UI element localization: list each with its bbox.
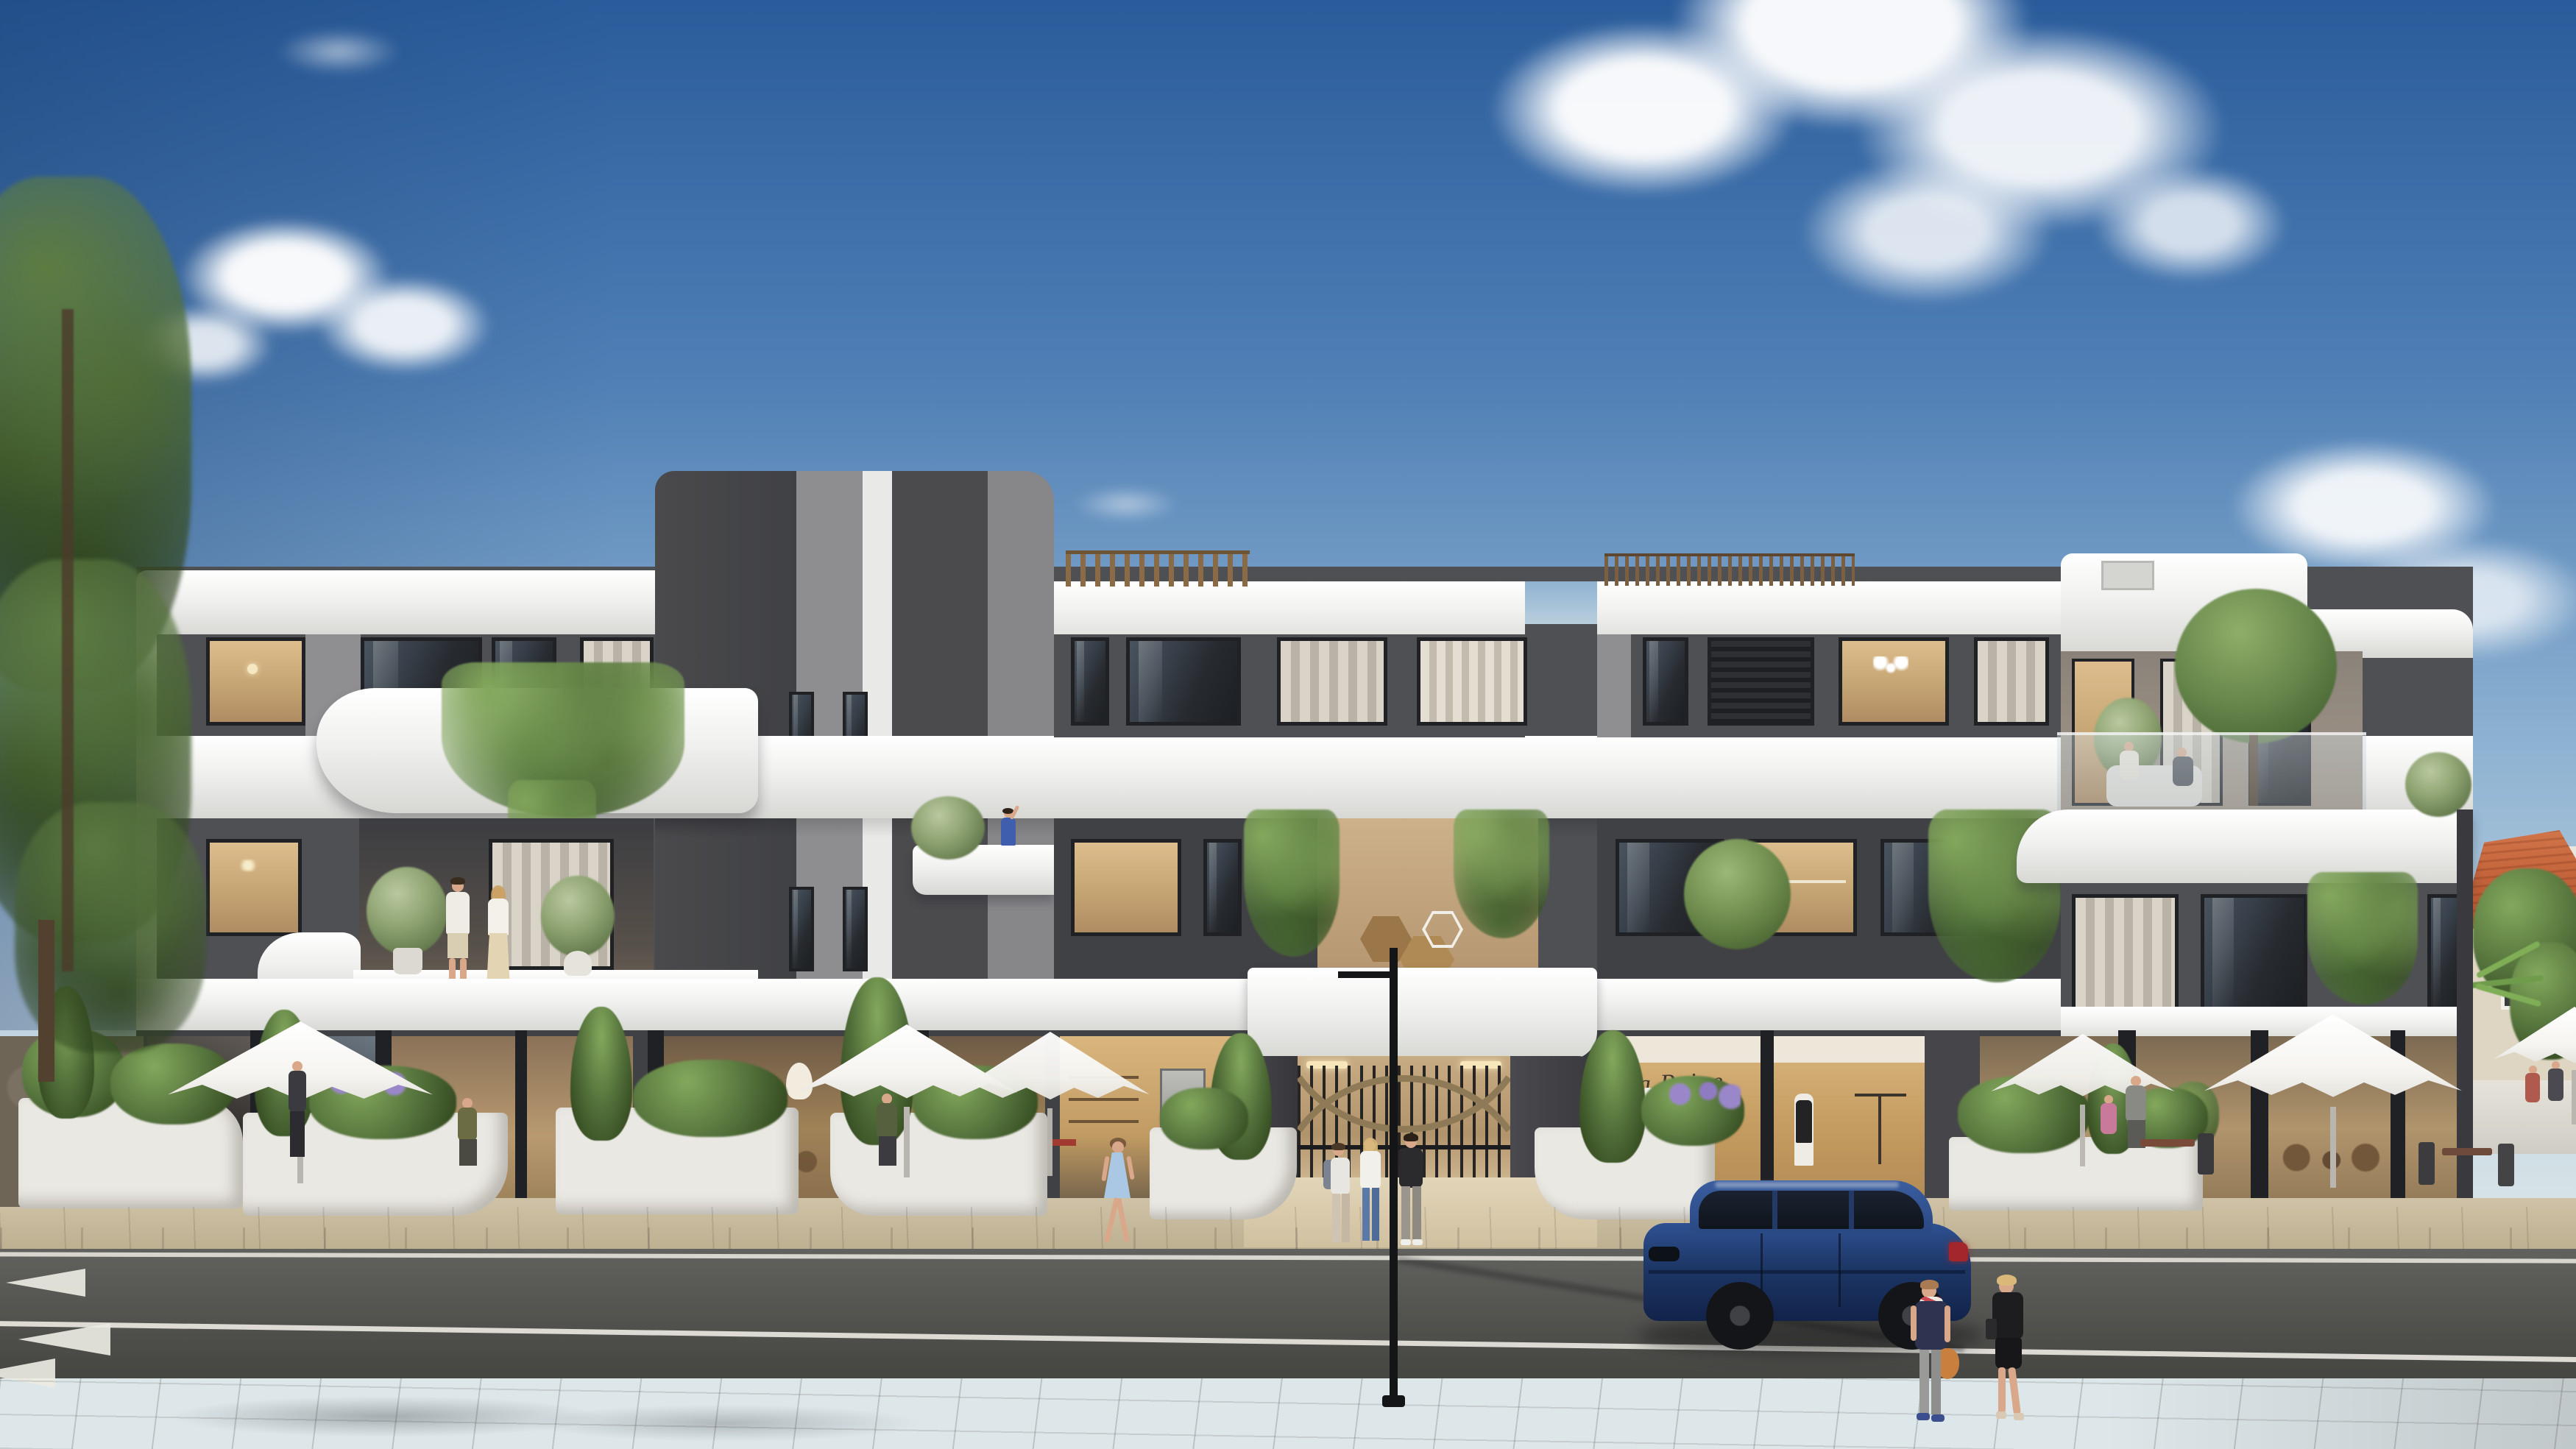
suv-door-seam	[1839, 1233, 1841, 1307]
body-part	[1998, 1367, 2006, 1413]
body-part	[1931, 1350, 1941, 1414]
cafe-patron-standing	[284, 1061, 311, 1160]
parasol-pole	[1047, 1108, 1052, 1176]
cafe-table	[2442, 1148, 2492, 1155]
parapet-tree-small	[2405, 752, 2471, 817]
curb	[0, 1227, 2576, 1250]
panel-gray-accent	[1597, 634, 1631, 737]
roof-notch	[1525, 581, 1597, 624]
body-part	[2131, 1076, 2141, 1086]
body-part	[2126, 1085, 2146, 1122]
body-part	[2008, 1367, 2021, 1415]
potted-olive	[367, 867, 447, 955]
parasol-pole	[2080, 1105, 2085, 1166]
window-warm	[206, 637, 305, 726]
window-curtain	[2072, 894, 2179, 1010]
body-part	[1992, 1292, 2023, 1339]
body-part	[290, 1111, 305, 1157]
cafe-chair	[2498, 1144, 2514, 1186]
body-part	[446, 892, 470, 935]
body-part	[1404, 1133, 1418, 1141]
body-part	[1116, 1198, 1129, 1242]
cloud-wisp-center	[1045, 471, 1207, 537]
body-part	[450, 877, 465, 885]
body-part	[2014, 1413, 2024, 1420]
waving-woman	[995, 807, 1022, 851]
tower-window-slim	[789, 887, 814, 971]
parasol-canopy	[2204, 1014, 2462, 1118]
tree-shadow-on-sidewalk	[132, 1384, 979, 1449]
body-part	[2525, 1073, 2540, 1102]
parasol-pole	[2330, 1107, 2336, 1188]
body-part	[1001, 818, 1016, 846]
street-lamp-base	[1382, 1395, 1405, 1407]
street-lamp-arm	[1338, 971, 1394, 978]
balcony-plant	[911, 796, 985, 860]
body-part	[1372, 1188, 1379, 1241]
body-part	[1911, 1305, 1917, 1341]
pine-trunk	[62, 309, 74, 971]
suv-roof-highlight	[1715, 1182, 1899, 1188]
pedestrian-woman-blue-dress	[1095, 1140, 1141, 1252]
window-dark	[2201, 894, 2307, 1010]
cafe-patron-seated	[2523, 1066, 2542, 1117]
balcony-woman	[482, 888, 516, 993]
body-part	[447, 933, 468, 958]
gate-visitor-backpack	[1322, 1145, 1356, 1253]
suv-headlight	[1649, 1247, 1680, 1261]
suv-taillight	[1949, 1242, 1968, 1261]
body-part	[1362, 1188, 1370, 1241]
window-warm	[1071, 839, 1181, 936]
roof-pergola	[1066, 550, 1250, 587]
suv-beltline	[1649, 1270, 1965, 1274]
mannequin-dress	[1796, 1100, 1812, 1143]
architectural-rendering: La Reine	[0, 0, 2576, 1449]
body-part	[1919, 1350, 1929, 1414]
window-dark-slim	[1203, 839, 1242, 936]
body-part	[292, 1061, 302, 1071]
terrace-tree-large	[2175, 589, 2337, 743]
clothes-rack-leg	[1878, 1094, 1881, 1164]
body-part	[1331, 1143, 1345, 1150]
window-curtain	[1277, 637, 1387, 726]
planter-bush	[1160, 1088, 1248, 1149]
body-part	[879, 1136, 896, 1166]
suv-pillar	[1772, 1191, 1777, 1229]
parasol-canopy	[951, 1032, 1150, 1116]
foreground-woman-scarf	[1902, 1280, 1964, 1425]
roof-vent-box	[2101, 561, 2154, 590]
hanging-ivy	[2307, 872, 2418, 1005]
body-part	[1920, 1280, 1939, 1289]
terrace-glass-balustrade	[2057, 732, 2366, 816]
shade-on-sidewalk-right	[2105, 1378, 2576, 1449]
window-warm-chandelier	[1839, 637, 1949, 726]
hanging-ivy	[1244, 809, 1340, 957]
road	[0, 1249, 2576, 1378]
suv-pillar	[1849, 1191, 1854, 1229]
window-dark-slim	[1071, 637, 1109, 726]
olive-pot	[393, 948, 422, 974]
cloud-wisp-top-left	[236, 7, 442, 96]
window-blinds	[1708, 637, 1814, 726]
body-part	[1931, 1414, 1945, 1422]
body-part	[2101, 1103, 2117, 1134]
body-part	[882, 1094, 892, 1104]
body-part	[458, 1108, 477, 1141]
parapet-left-wing	[136, 570, 655, 637]
gate-visitor-white-top	[1354, 1139, 1387, 1254]
body-part	[1126, 1156, 1134, 1180]
gate-visitor-black-polo	[1393, 1136, 1431, 1253]
body-part	[1331, 1158, 1350, 1194]
roof-railing-slats	[1604, 553, 1855, 586]
body-part	[459, 1139, 477, 1166]
body-part	[1996, 1411, 2006, 1419]
street-tree-trunk	[38, 920, 54, 1082]
body-part	[1412, 1186, 1421, 1239]
body-part	[1360, 1151, 1381, 1189]
chandelier	[1873, 656, 1908, 676]
tower-window-slim	[843, 887, 868, 971]
balcony-man	[442, 880, 475, 992]
cafe-chair	[2418, 1142, 2435, 1185]
body-part	[1342, 1194, 1350, 1242]
chandelier	[237, 860, 259, 871]
parasol-pole	[904, 1107, 910, 1177]
body-part	[289, 1071, 306, 1112]
window-dark	[1126, 637, 1241, 726]
body-part	[1986, 1319, 1997, 1339]
body-part	[1997, 1275, 2017, 1286]
body-part	[1915, 1301, 1947, 1350]
pendant-light	[247, 664, 258, 674]
cafe-patron-seated	[2098, 1095, 2120, 1152]
cafe-patron-seated	[453, 1098, 483, 1169]
storefront-mullion	[515, 1030, 527, 1207]
lavender	[1660, 1082, 1741, 1113]
body-part	[1401, 1186, 1410, 1239]
parasol-pole	[2572, 1070, 2576, 1124]
planter-bush	[633, 1060, 788, 1137]
cloud-top-right	[1362, 0, 2304, 339]
cafe-patron-seated	[2545, 1061, 2566, 1117]
body-part	[1945, 1305, 1950, 1342]
cafe-patron-seated	[873, 1094, 902, 1170]
suv-wheel	[1706, 1282, 1774, 1350]
foreground-woman-suit	[1980, 1276, 2043, 1425]
hanging-ivy	[1454, 809, 1549, 938]
window-curtain	[1417, 637, 1527, 726]
body-part	[877, 1103, 897, 1138]
potted-olive	[541, 876, 615, 957]
body-part	[1399, 1148, 1423, 1188]
cafe-chair	[2198, 1133, 2214, 1175]
entrance-canopy-band	[1248, 968, 1597, 1060]
body-part	[488, 899, 509, 935]
window-dark-slim	[1643, 637, 1688, 726]
body-part	[1401, 1239, 1411, 1245]
window-curtain	[1974, 637, 2049, 726]
body-part	[2548, 1069, 2563, 1101]
olive-pot	[564, 951, 592, 976]
balcony-tree	[1684, 839, 1791, 949]
body-part	[1112, 1141, 1124, 1153]
window-warm	[206, 839, 302, 936]
cafe-table	[2140, 1139, 2195, 1147]
body-part	[1995, 1338, 2022, 1369]
body-part	[462, 1098, 473, 1108]
suv-glasshouse	[1699, 1191, 1924, 1229]
body-part	[1412, 1239, 1423, 1245]
body-part	[1917, 1413, 1930, 1420]
body-part	[1332, 1194, 1340, 1242]
